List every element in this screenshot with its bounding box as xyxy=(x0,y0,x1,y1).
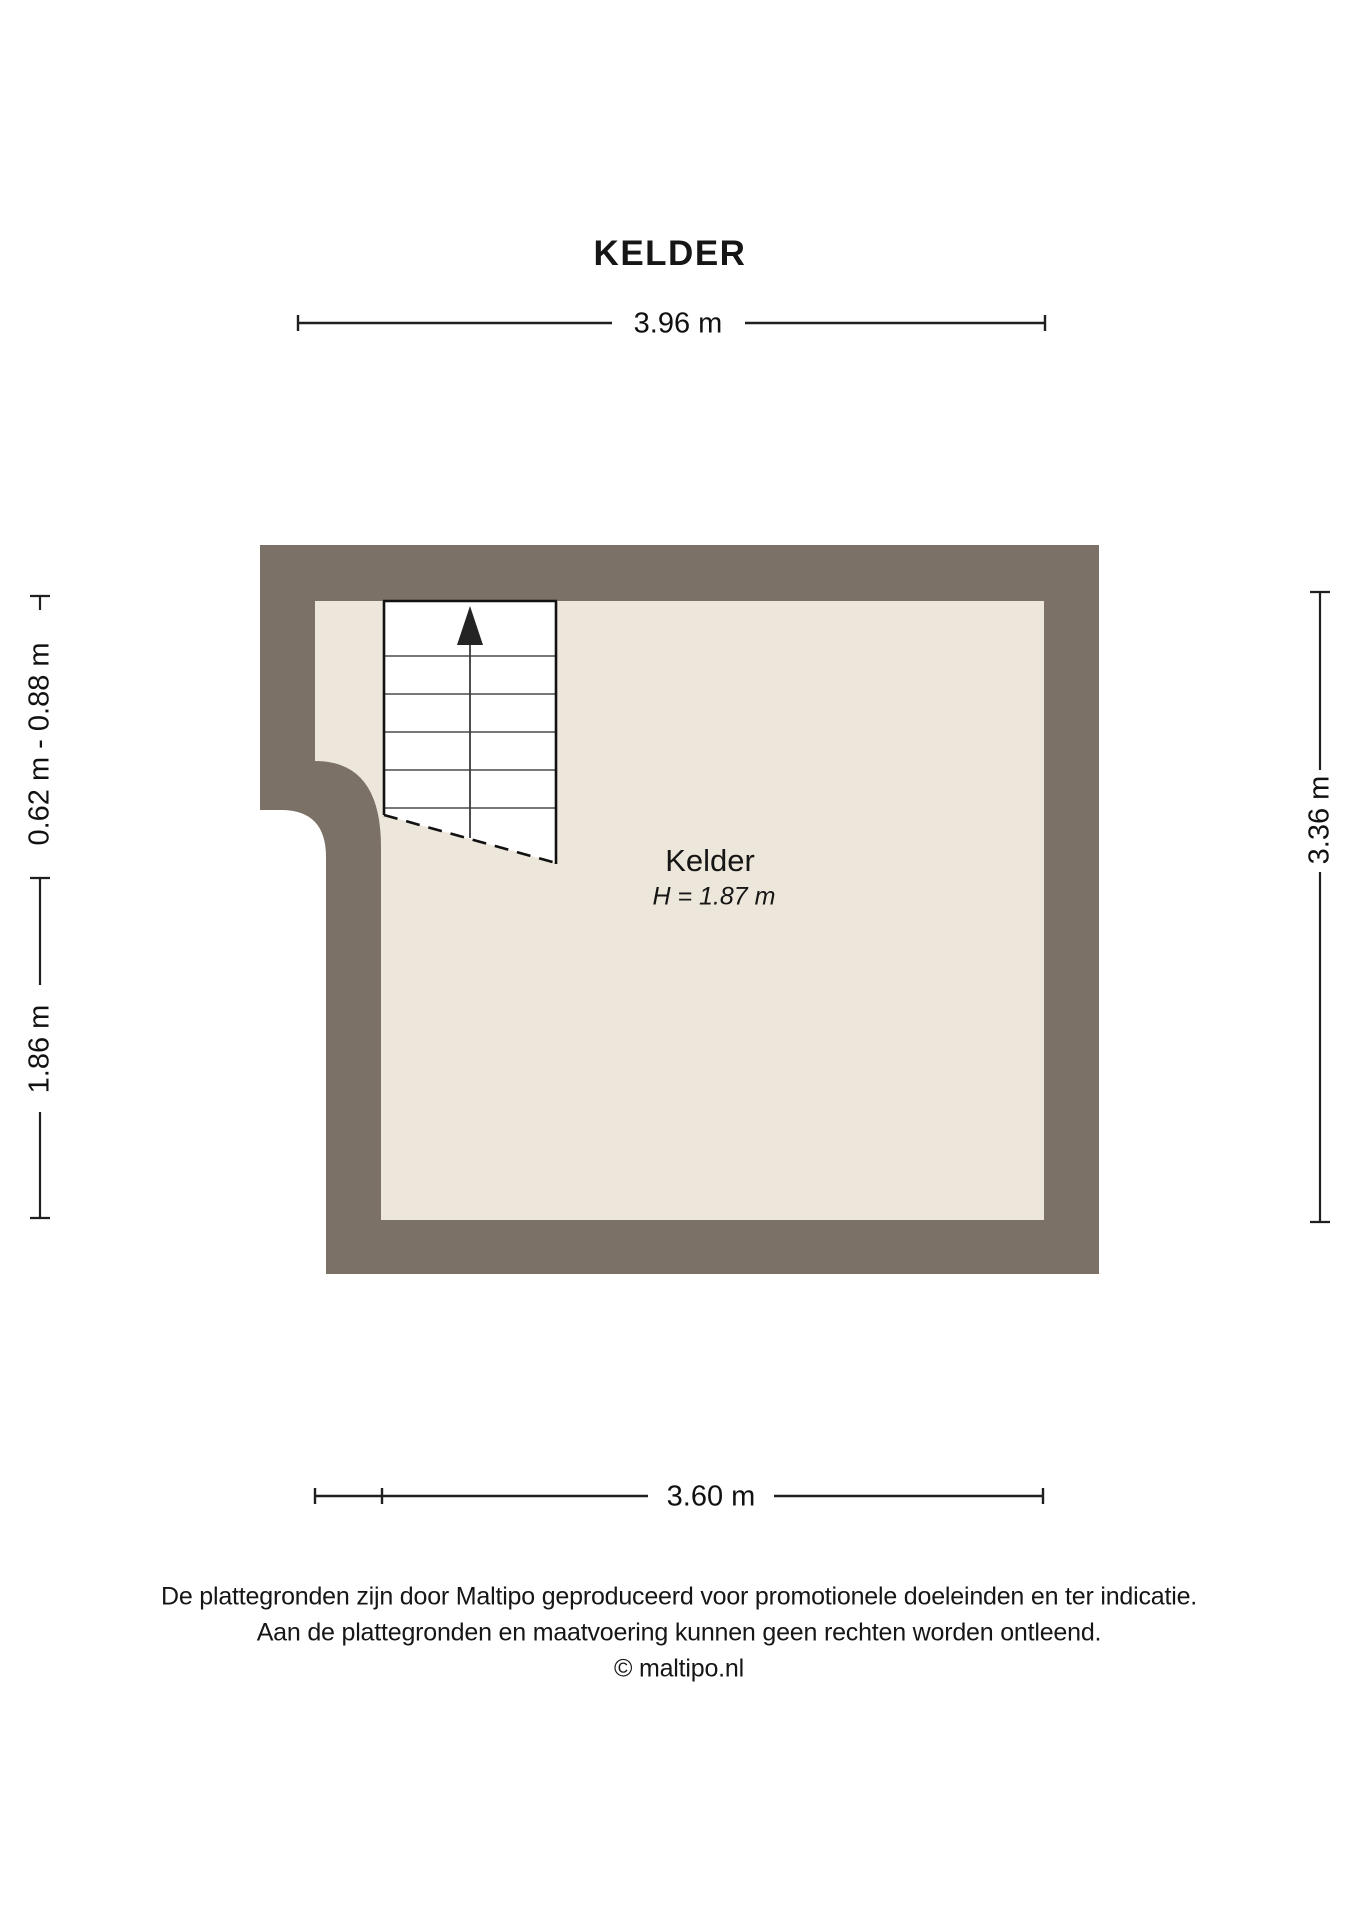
floorplan-page: KELDER xyxy=(0,0,1358,1920)
room-name-label: Kelder xyxy=(665,843,755,879)
room-height-label: H = 1.87 m xyxy=(653,883,776,912)
bottom-dimension-label: 3.60 m xyxy=(657,1481,766,1514)
right-dimension-line xyxy=(1310,592,1330,1222)
left-upper-dimension-label: 0.62 m - 0.88 m xyxy=(24,642,57,845)
footer-line-1: De plattegronden zijn door Maltipo gepro… xyxy=(161,1583,1197,1612)
footer-copyright: © maltipo.nl xyxy=(614,1655,744,1684)
top-dimension-label: 3.96 m xyxy=(624,308,733,341)
right-dimension-label: 3.36 m xyxy=(1304,776,1337,865)
left-lower-dimension-label: 1.86 m xyxy=(24,1005,57,1094)
footer-line-2: Aan de plattegronden en maatvoering kunn… xyxy=(257,1619,1102,1648)
